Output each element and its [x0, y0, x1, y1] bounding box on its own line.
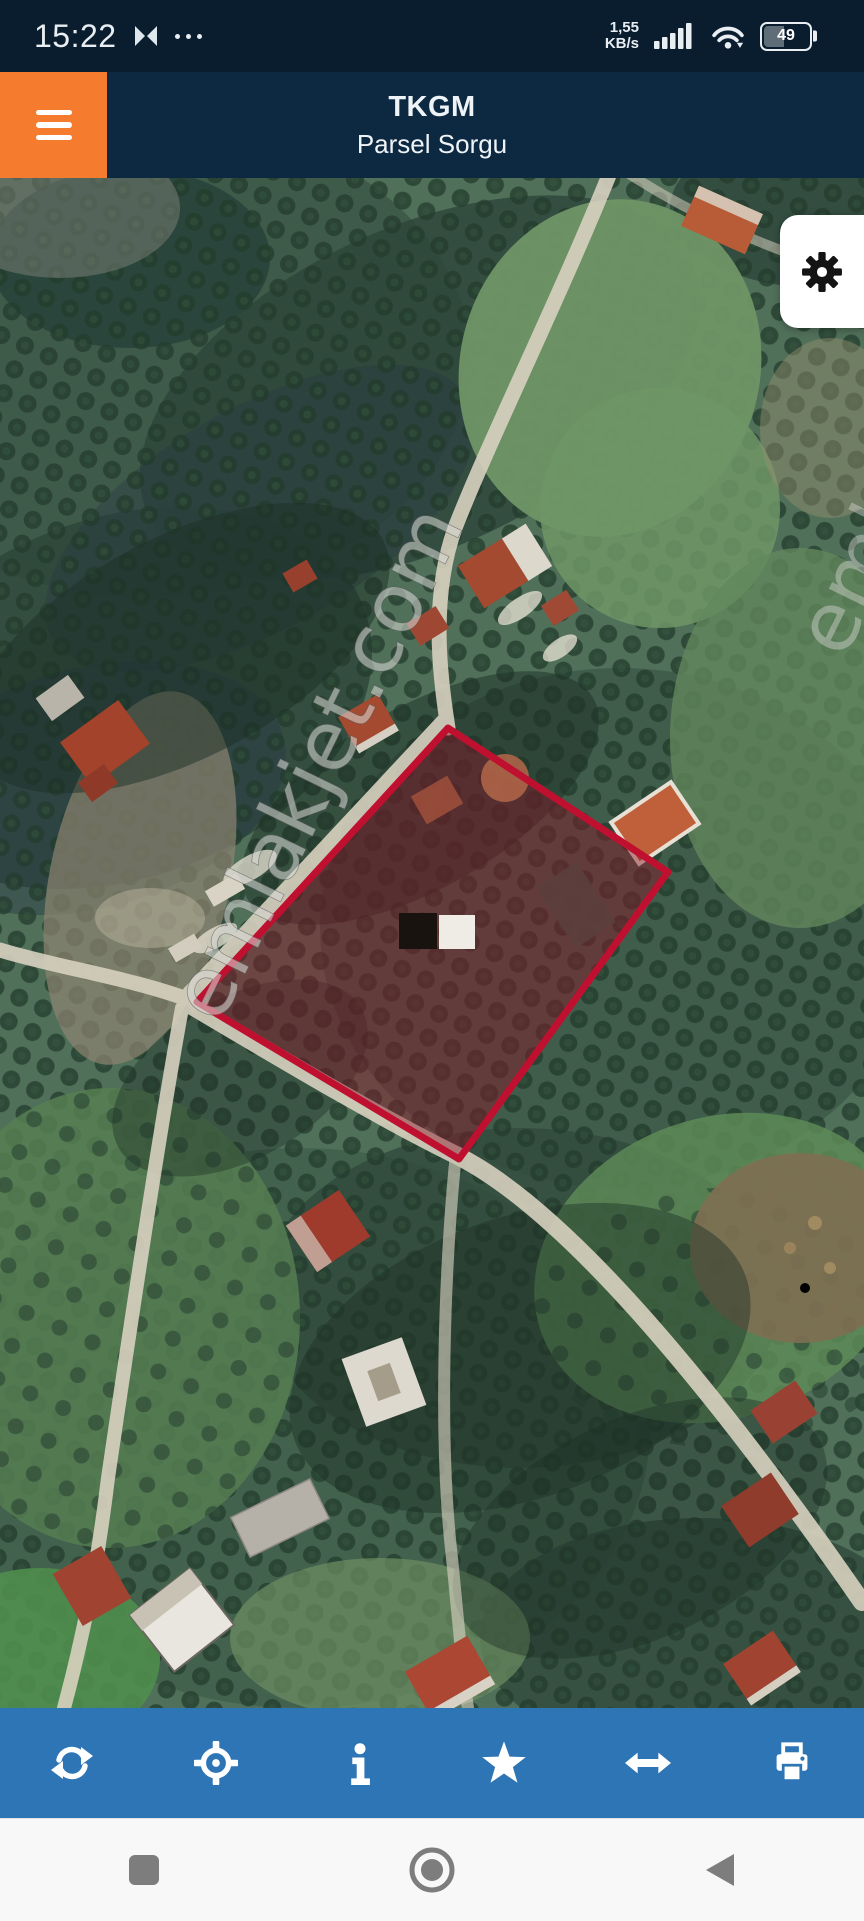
- locate-button[interactable]: [171, 1718, 261, 1808]
- info-icon: [338, 1741, 382, 1785]
- network-speed: 1,55 KB/s: [605, 20, 639, 52]
- print-button[interactable]: [747, 1718, 837, 1808]
- swap-horizontal-button[interactable]: [603, 1718, 693, 1808]
- info-button[interactable]: [315, 1718, 405, 1808]
- star-icon: [480, 1739, 528, 1787]
- back-button[interactable]: [660, 1825, 780, 1915]
- print-icon: [770, 1741, 814, 1785]
- favorite-button[interactable]: [459, 1718, 549, 1808]
- home-circle-icon: [408, 1846, 456, 1894]
- refresh-button[interactable]: [27, 1718, 117, 1808]
- horizontal-arrows-icon: [625, 1740, 671, 1786]
- home-button[interactable]: [372, 1825, 492, 1915]
- satellite-map-image: emlakjet.com emlakjet.com: [0, 178, 864, 1708]
- menu-button[interactable]: [0, 72, 107, 178]
- gear-icon: [801, 251, 843, 293]
- settings-button[interactable]: [780, 215, 864, 328]
- status-bar: 15:22 1,55 KB/s: [0, 0, 864, 72]
- battery-indicator: 49: [760, 22, 812, 51]
- hamburger-icon: [36, 110, 72, 116]
- app-title: TKGM: [388, 91, 475, 124]
- android-nav-bar: [0, 1818, 864, 1921]
- refresh-icon: [50, 1741, 94, 1785]
- hourglass-icon: [133, 24, 159, 48]
- cellular-signal-icon: [654, 23, 696, 49]
- back-triangle-icon: [704, 1852, 736, 1888]
- map-toolbar: [0, 1708, 864, 1818]
- locate-icon: [194, 1741, 238, 1785]
- map-viewport[interactable]: emlakjet.com emlakjet.com: [0, 178, 864, 1708]
- recents-square-icon: [127, 1853, 161, 1887]
- page-title: Parsel Sorgu: [357, 129, 507, 160]
- wifi-icon: [711, 23, 745, 50]
- more-notifications-icon: [175, 34, 202, 39]
- app-header: TKGM Parsel Sorgu: [0, 72, 864, 178]
- clock: 15:22: [34, 18, 117, 55]
- recents-button[interactable]: [84, 1825, 204, 1915]
